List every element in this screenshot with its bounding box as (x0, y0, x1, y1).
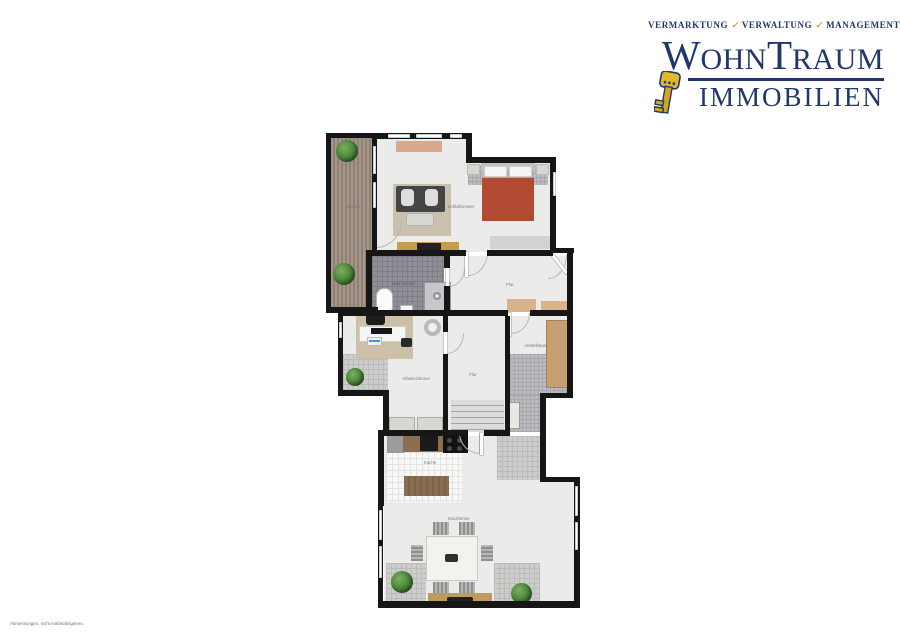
wall-segment (567, 310, 573, 398)
tagline-word: VERWALTUNG (742, 20, 812, 30)
wall-segment (383, 430, 468, 436)
appliance (509, 402, 520, 429)
wall-segment (443, 316, 448, 332)
room-label-flur-mitte: Flur (469, 373, 477, 377)
stairs (451, 400, 504, 432)
dining-chair (411, 545, 423, 561)
window (379, 546, 382, 578)
wall-segment (484, 430, 510, 436)
pillow (484, 166, 507, 177)
room-label-bad: Bad mit WC (392, 282, 415, 286)
company-logo: VERMARKTUNG ✓ VERWALTUNG ✓ MANAGEMENT ✓ … (648, 20, 884, 117)
table-decor (445, 554, 458, 562)
window (450, 134, 462, 138)
plant (333, 263, 355, 285)
armchair (425, 189, 438, 206)
armchair (401, 189, 414, 206)
window (388, 134, 410, 138)
room-label-schlafzimmer: Schlafzimmer (448, 205, 475, 209)
brand-text: OHN (700, 43, 767, 76)
wall-segment (378, 601, 580, 608)
monitor (371, 328, 392, 334)
plant (336, 140, 358, 162)
burner (447, 438, 452, 443)
wall-segment (338, 310, 508, 316)
wall-segment (540, 395, 546, 482)
side-chair (401, 338, 412, 347)
room-label-arbeitszimmer: Arbeitszimmer (402, 377, 430, 381)
burner (457, 446, 462, 451)
plant (391, 571, 413, 593)
room-label-flur-oben: Flur (506, 283, 514, 287)
pillow (509, 166, 532, 177)
page: VERMARKTUNG ✓ VERWALTUNG ✓ MANAGEMENT ✓ … (0, 0, 900, 636)
nightstand (536, 164, 549, 175)
brand-text: RAUM (792, 43, 884, 76)
window (339, 322, 342, 338)
wall-segment (487, 250, 553, 256)
room-label-balkon: Balkon (346, 205, 359, 209)
wall-segment (378, 430, 384, 506)
floor-corner-ne (497, 436, 540, 480)
window (575, 522, 578, 550)
dining-chair (433, 522, 449, 535)
brand-name: WOHNTRAUM (648, 35, 884, 76)
kitchen-island (404, 476, 449, 496)
coffee-table (406, 213, 434, 226)
room-label-esszimmer: Esszimmer (448, 517, 470, 521)
watermark-text: Abmessungen, nicht maßstabsgetreu (10, 621, 83, 626)
brand-line2: IMMOBILIEN (699, 82, 884, 112)
floor-dining-right (540, 482, 574, 602)
window (379, 510, 382, 540)
wall-segment (326, 133, 331, 312)
room-label-kueche: Küche (424, 461, 436, 465)
wall-segment (567, 252, 573, 314)
tv (417, 243, 441, 250)
wall-segment (443, 354, 448, 436)
room-label-abstellraum: Abstellraum (524, 344, 547, 348)
dining-chair (459, 522, 475, 535)
dining-chair (481, 545, 493, 561)
bench (490, 236, 550, 249)
window (575, 486, 578, 516)
plant (346, 368, 364, 386)
window (373, 146, 376, 174)
brand-initial: T (767, 32, 792, 78)
tagline-word: MANAGEMENT (826, 20, 900, 30)
door-leaf (444, 332, 447, 355)
wall-segment (505, 316, 510, 436)
wall-segment (530, 310, 572, 316)
printer-detail (369, 340, 380, 342)
kitchen-cabinet (387, 435, 404, 453)
logo-divider (688, 78, 884, 81)
wall-segment (326, 133, 378, 138)
tagline-word: VERMARKTUNG (648, 20, 728, 30)
wall-segment (338, 390, 388, 396)
nightstand (467, 164, 480, 175)
sideboard (396, 141, 442, 152)
door-leaf (446, 268, 449, 288)
door-leaf (480, 433, 483, 455)
shower-drain (433, 292, 441, 300)
wall-segment (366, 250, 372, 316)
key-icon (654, 71, 684, 122)
check-icon: ✓ (815, 20, 823, 30)
wall-segment (466, 157, 556, 163)
window (553, 172, 556, 196)
wall-segment (368, 250, 466, 256)
check-icon: ✓ (731, 20, 739, 30)
burner (447, 446, 452, 451)
washing-machine (424, 319, 441, 336)
oven (420, 436, 438, 451)
window (373, 182, 376, 208)
wall-segment (444, 256, 450, 268)
window (416, 134, 442, 138)
bed-blanket (482, 178, 534, 221)
logo-tagline: VERMARKTUNG ✓ VERWALTUNG ✓ MANAGEMENT ✓ (648, 20, 884, 31)
wardrobe (546, 320, 568, 388)
